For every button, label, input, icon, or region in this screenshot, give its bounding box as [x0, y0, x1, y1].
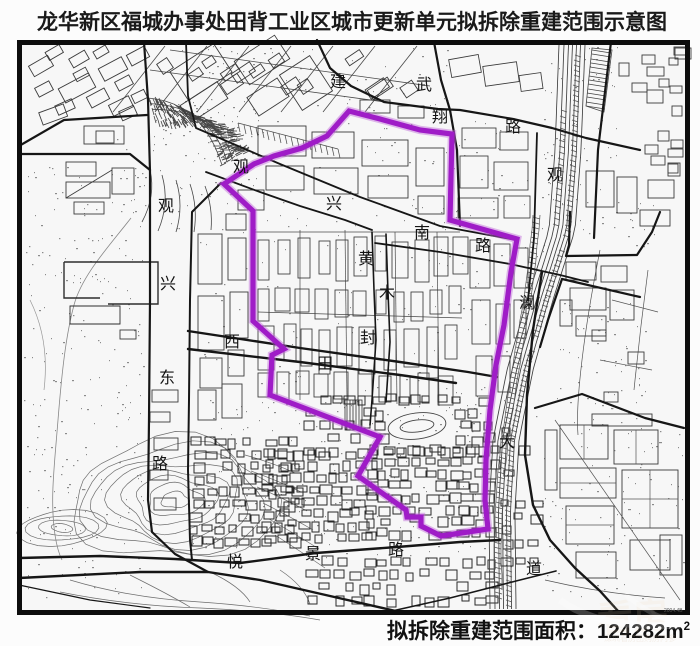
svg-text:2004.4B: 2004.4B — [664, 608, 683, 614]
svg-text:深圳看房团购房内参: 深圳看房团购房内参 — [604, 633, 676, 643]
svg-text:龙华新区福城办事处田背工业区城市更新单元拟拆除重建范围示意图: 龙华新区福城办事处田背工业区城市更新单元拟拆除重建范围示意图 — [37, 10, 667, 34]
